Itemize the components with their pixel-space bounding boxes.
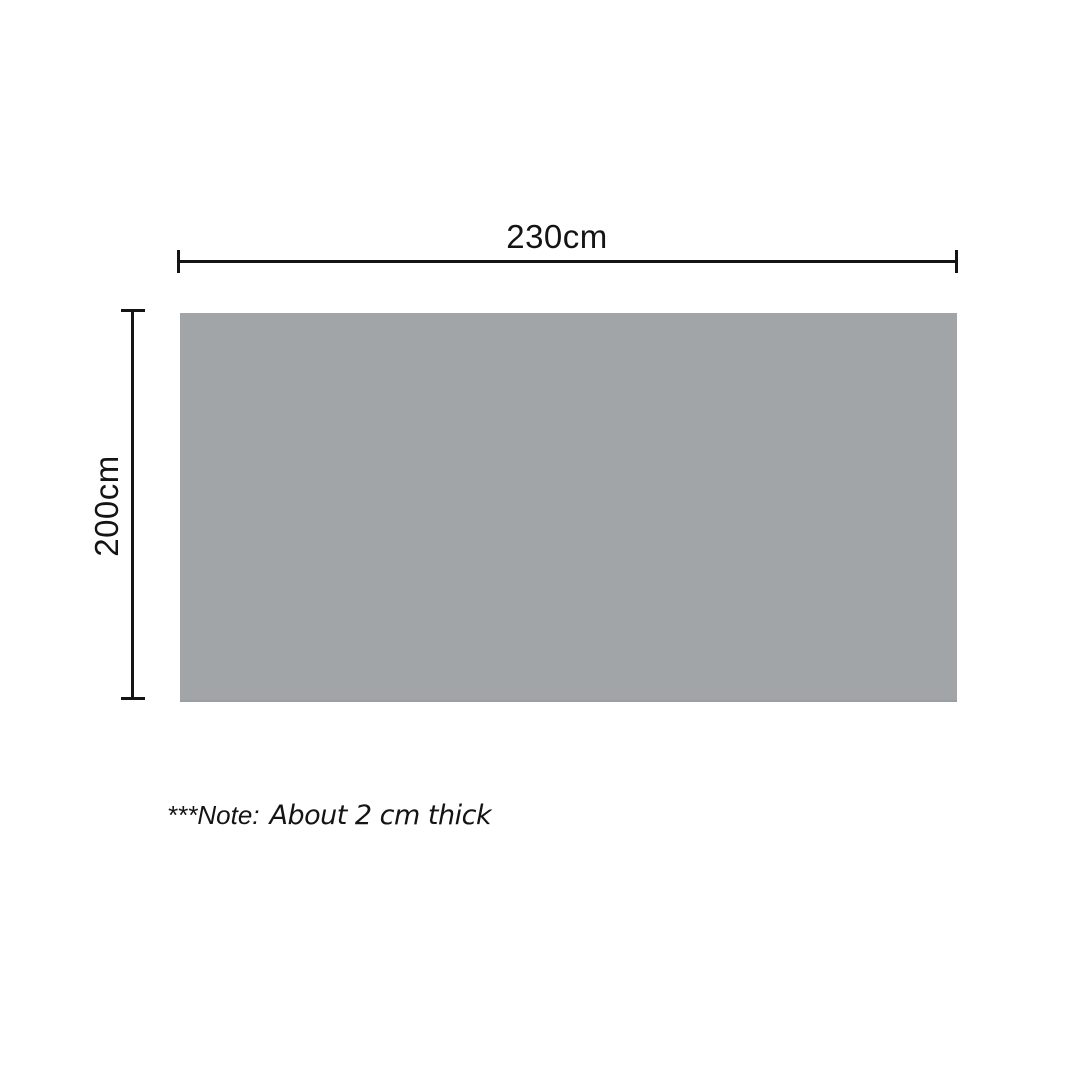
- width-dimension-tick-left: [177, 250, 180, 273]
- height-dimension-tick-bottom: [121, 697, 145, 700]
- product-dimension-diagram: 230cm 200cm ***Note:About 2 cm thick: [0, 0, 1080, 1080]
- width-dimension-tick-right: [955, 250, 958, 273]
- thickness-note-text: About 2 cm thick: [270, 800, 492, 831]
- height-dimension-label: 200cm: [88, 426, 126, 586]
- thickness-note-prefix: ***Note:: [167, 800, 260, 830]
- height-dimension-tick-top: [121, 309, 145, 312]
- product-panel: [180, 313, 957, 702]
- width-dimension-line: [177, 260, 958, 263]
- width-dimension-label: 230cm: [477, 218, 637, 256]
- height-dimension-line: [131, 309, 134, 700]
- thickness-note: ***Note:About 2 cm thick: [167, 800, 491, 831]
